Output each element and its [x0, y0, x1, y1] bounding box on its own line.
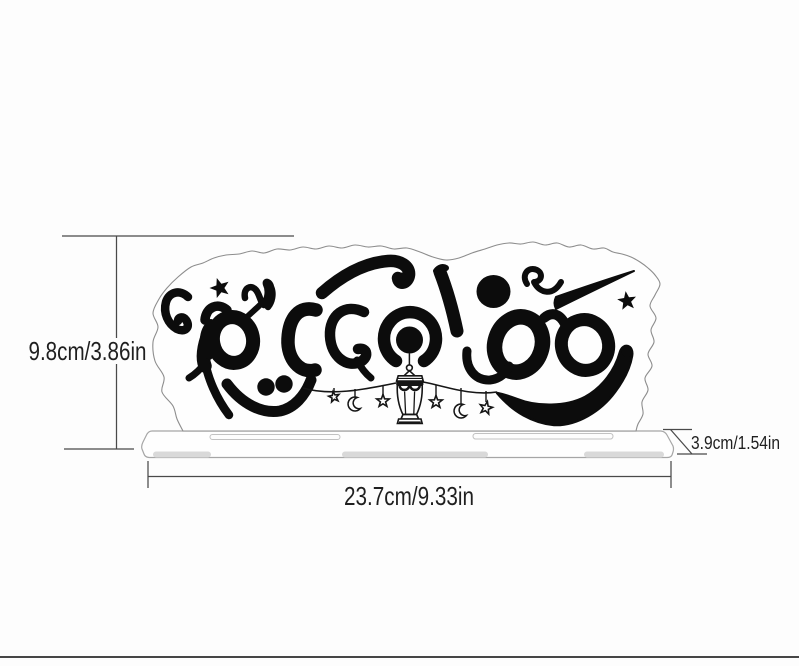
svg-text:23.7cm/9.33in: 23.7cm/9.33in [344, 481, 474, 511]
svg-text:9.8cm/3.86in: 9.8cm/3.86in [29, 336, 147, 366]
svg-text:3.9cm/1.54in: 3.9cm/1.54in [691, 433, 780, 453]
